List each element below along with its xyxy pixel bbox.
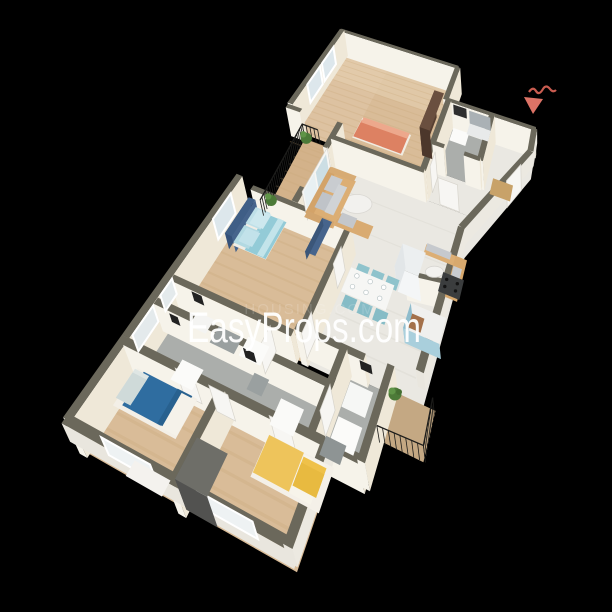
svg-text:EasyProps.com: EasyProps.com [187, 304, 421, 352]
